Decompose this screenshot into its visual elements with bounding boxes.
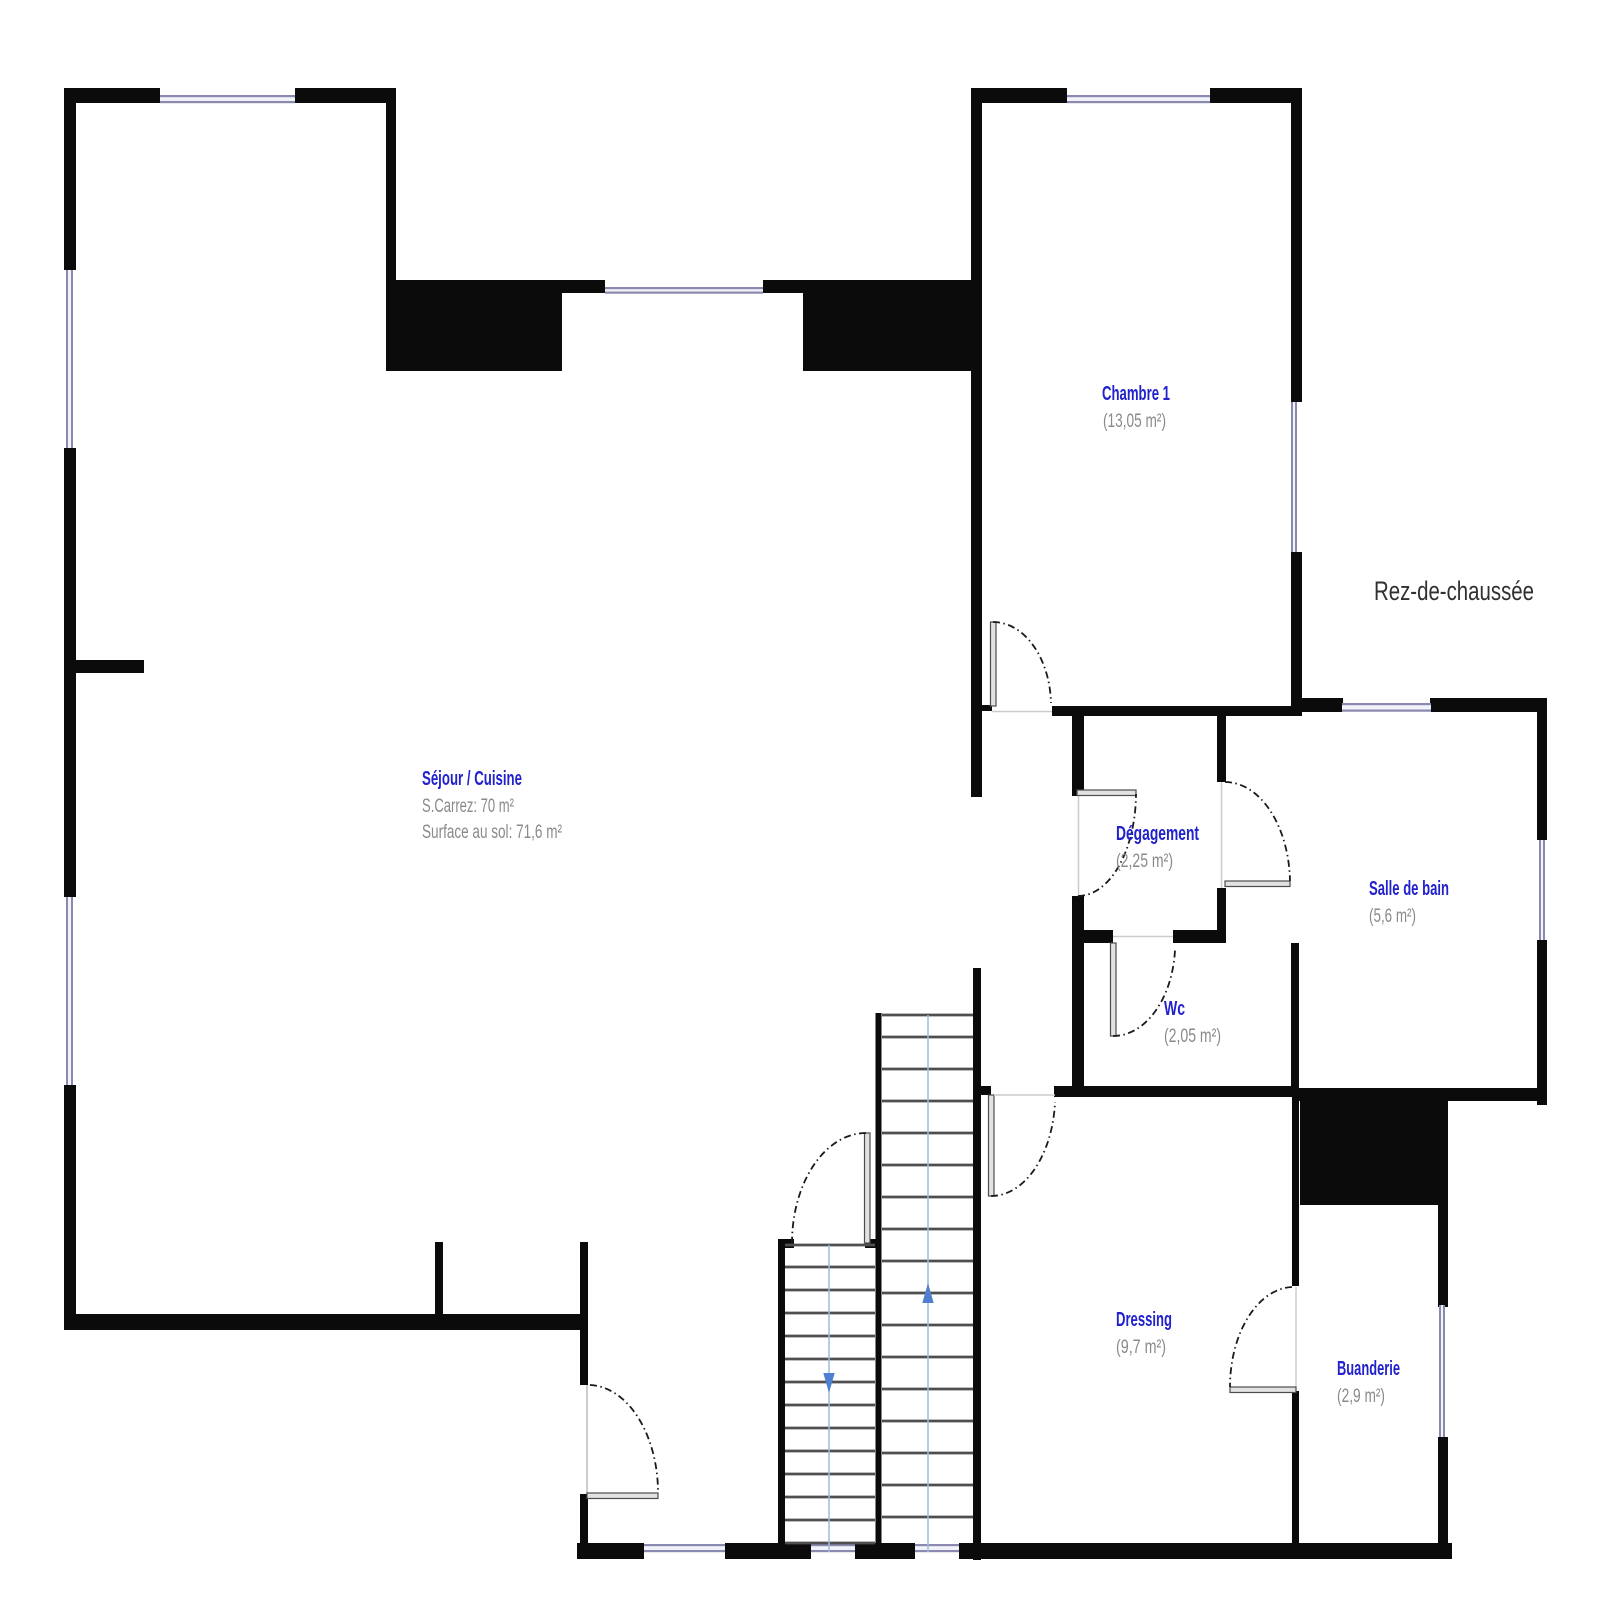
svg-text:Séjour / Cuisine: Séjour / Cuisine [422, 768, 522, 790]
svg-text:S.Carrez: 70 m²: S.Carrez: 70 m² [422, 796, 514, 817]
svg-text:Buanderie: Buanderie [1337, 1358, 1400, 1380]
svg-text:(5,6 m²): (5,6 m²) [1369, 906, 1416, 927]
svg-text:Dressing: Dressing [1116, 1309, 1172, 1331]
svg-text:Rez-de-chaussée: Rez-de-chaussée [1374, 576, 1534, 606]
svg-text:(13,05 m²): (13,05 m²) [1103, 411, 1166, 432]
svg-text:Wc: Wc [1164, 998, 1185, 1020]
svg-text:Chambre 1: Chambre 1 [1102, 383, 1170, 405]
svg-text:Dégagement: Dégagement [1116, 823, 1199, 845]
svg-text:Surface au sol: 71,6 m²: Surface au sol: 71,6 m² [422, 822, 562, 843]
svg-text:Salle de bain: Salle de bain [1369, 878, 1449, 900]
svg-text:(2,25 m²): (2,25 m²) [1116, 851, 1173, 872]
svg-text:(9,7 m²): (9,7 m²) [1116, 1337, 1166, 1358]
svg-text:(2,05 m²): (2,05 m²) [1164, 1026, 1221, 1047]
svg-text:(2,9 m²): (2,9 m²) [1337, 1386, 1385, 1407]
